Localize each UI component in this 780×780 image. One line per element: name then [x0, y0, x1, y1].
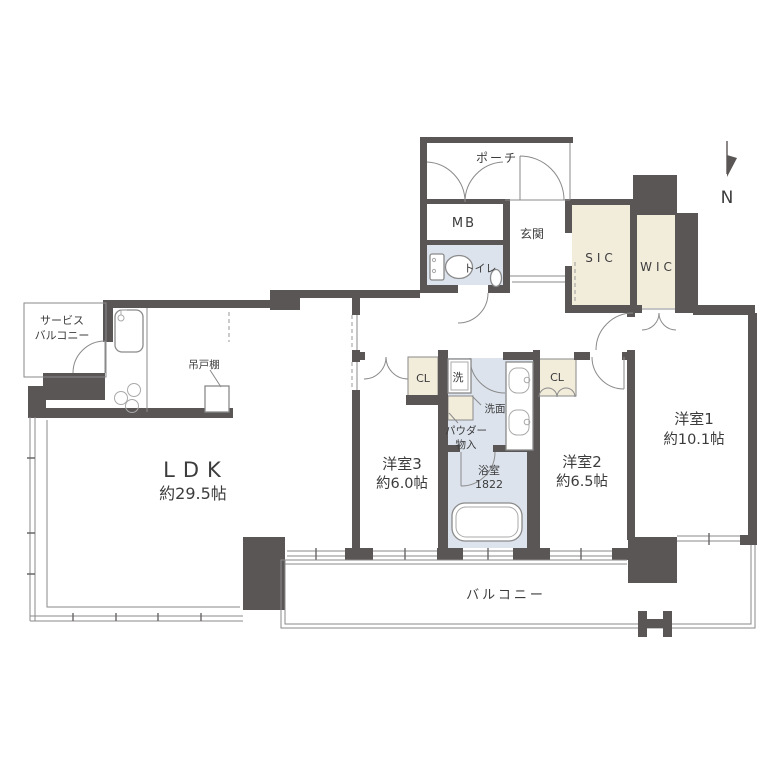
wall-segment	[675, 213, 698, 313]
label-washer: 洗	[453, 371, 464, 384]
partition-bar	[644, 619, 666, 628]
label-porch: ポーチ	[476, 151, 518, 165]
north-arrow-icon	[727, 141, 737, 177]
wall-segment	[352, 390, 360, 556]
floor-plan-page: ポーチ MB 玄関 トイレ SIC WIC サービス バルコニー 吊戸棚 LDK…	[0, 0, 780, 780]
bedroom3-double-door-arcs	[364, 357, 408, 379]
wall-segment	[630, 205, 637, 305]
wall-segment	[488, 285, 510, 293]
entrance-door-arc	[520, 156, 564, 200]
label-bedroom3-name: 洋室3	[382, 455, 422, 473]
label-toilet: トイレ	[464, 262, 497, 275]
label-powder-1: パウダー	[445, 424, 487, 437]
wall-segment	[420, 137, 427, 293]
label-hanging-cupboard: 吊戸棚	[188, 358, 220, 371]
wall-segment	[352, 352, 365, 360]
walls	[28, 137, 757, 610]
floor-plan-drawing: ポーチ MB 玄関 トイレ SIC WIC サービス バルコニー 吊戸棚 LDK…	[0, 0, 780, 780]
wall-segment	[420, 199, 505, 204]
label-bedroom1-name: 洋室1	[674, 410, 714, 428]
toilet-door-arc	[458, 293, 488, 323]
kitchen-sink-icon	[115, 310, 143, 352]
balcony-inner-edge	[285, 560, 627, 564]
label-bedroom2-name: 洋室2	[562, 453, 602, 471]
label-north: N	[721, 188, 734, 208]
window-ticks	[27, 458, 201, 621]
wall-segment	[633, 175, 677, 215]
wall-segment	[28, 408, 233, 418]
wall-segment	[627, 305, 635, 317]
entrance-step-line	[510, 276, 565, 282]
sink-basin	[115, 310, 143, 352]
wall-segment	[693, 305, 755, 315]
bedroom1-door-arc	[596, 313, 633, 350]
label-closet-bedroom2: CL	[550, 371, 565, 384]
wic-double-door-arcs	[642, 313, 676, 330]
service-balcony-door-arc	[73, 341, 105, 373]
label-powder-2: 物入	[456, 438, 477, 451]
label-ldk-name: LDK	[163, 458, 229, 482]
wall-segment	[438, 350, 448, 560]
wall-segment	[103, 300, 113, 342]
wall-segment	[748, 313, 757, 545]
wall-segment	[420, 285, 458, 293]
wall-segment	[740, 535, 757, 545]
wall-segment	[565, 199, 637, 205]
label-bedroom1-size: 約10.1帖	[663, 431, 724, 448]
bathtub-icon	[452, 503, 522, 541]
label-entrance: 玄関	[520, 226, 544, 241]
wall-segment	[627, 350, 635, 540]
bedroom2-door-arc	[592, 357, 624, 389]
wall-segment	[437, 548, 463, 560]
label-service-balcony-1: サービス	[40, 314, 84, 327]
wall-segment	[345, 548, 373, 560]
porch-double-door-arcs	[427, 162, 503, 202]
wall-segment	[574, 352, 590, 360]
ldk-left-window	[30, 417, 35, 621]
label-sic: SIC	[585, 251, 617, 265]
wall-segment	[300, 290, 420, 298]
wall-segment	[513, 548, 550, 560]
ldk-bottom-window	[30, 616, 243, 621]
label-bedroom2-size: 約6.5帖	[556, 473, 608, 490]
wall-segment	[628, 537, 677, 583]
wall-segment	[406, 395, 440, 405]
label-bedroom3-size: 約6.0帖	[376, 475, 428, 492]
label-closet-bedroom3: CL	[416, 372, 431, 385]
wall-segment	[420, 137, 573, 143]
stove-burner	[128, 384, 141, 397]
wall-segment	[565, 205, 572, 233]
wall-segment	[103, 300, 280, 308]
wall-segment	[527, 445, 535, 548]
wall-segment	[503, 199, 510, 293]
stove-burner	[115, 392, 128, 405]
wall-segment	[352, 298, 360, 315]
hanging-cupboard-box	[205, 386, 229, 412]
wall-segment	[565, 266, 572, 310]
label-bathroom-name: 浴室	[478, 463, 500, 477]
ldk-column	[243, 537, 285, 610]
wall-segment	[420, 240, 510, 245]
vanity-icon	[506, 362, 533, 450]
label-ldk-size: 約29.5帖	[159, 484, 227, 503]
north-arrow-head	[727, 155, 737, 177]
label-balcony: バルコニー	[466, 588, 546, 603]
hanging-cupboard-leader	[210, 370, 221, 387]
label-wic: WIC	[640, 260, 676, 274]
balcony-partition	[638, 611, 672, 637]
label-meter-box: MB	[452, 216, 476, 231]
ldk-inner-line	[47, 420, 240, 607]
wall-segment	[612, 548, 628, 560]
label-service-balcony-2: バルコニー	[35, 329, 90, 342]
label-vanity: 洗面	[485, 403, 506, 415]
label-bathroom-size: 1822	[475, 478, 503, 491]
toilet-tank	[430, 254, 444, 280]
bathtub-outer	[452, 503, 522, 541]
